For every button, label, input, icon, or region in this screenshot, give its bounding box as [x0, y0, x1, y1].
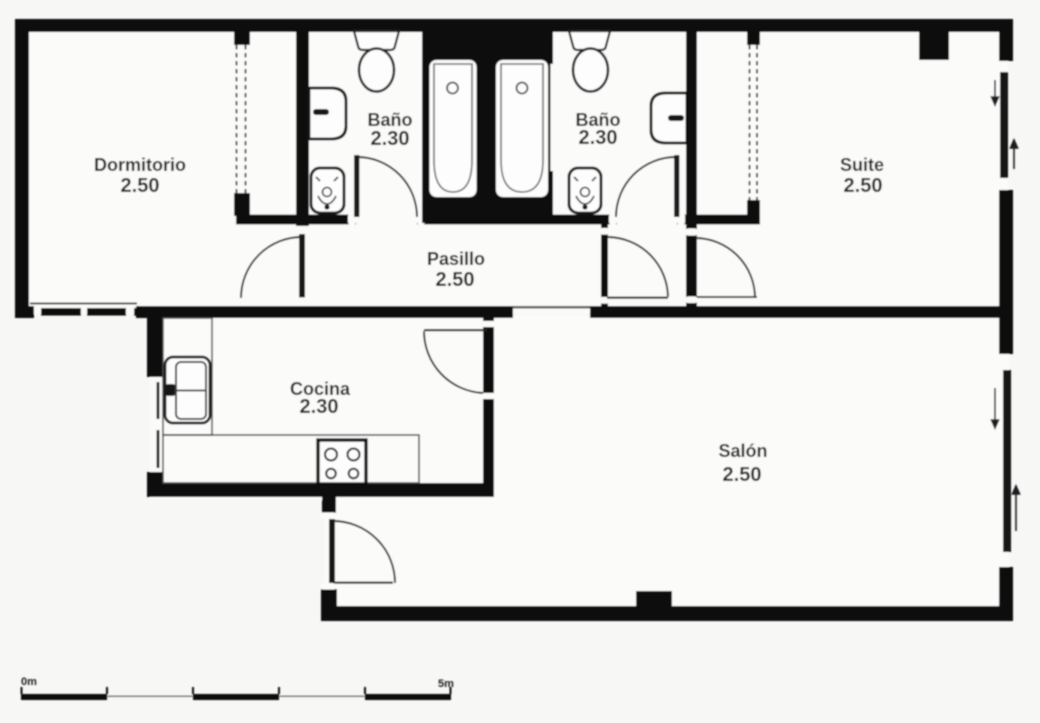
svg-text:2.30: 2.30 [579, 127, 618, 149]
svg-text:0m: 0m [21, 676, 37, 688]
svg-text:2.50: 2.50 [121, 175, 160, 197]
svg-text:2.50: 2.50 [723, 464, 762, 486]
svg-text:Pasillo: Pasillo [427, 249, 485, 269]
svg-text:Suite: Suite [840, 155, 884, 175]
svg-text:2.50: 2.50 [436, 269, 475, 291]
svg-text:2.30: 2.30 [300, 396, 339, 418]
svg-text:2.30: 2.30 [371, 128, 410, 150]
svg-text:Salón: Salón [718, 441, 767, 461]
svg-text:Dormitorio: Dormitorio [94, 155, 186, 175]
svg-text:2.50: 2.50 [844, 175, 883, 197]
svg-text:Baño: Baño [368, 110, 413, 130]
svg-text:5m: 5m [438, 678, 454, 690]
